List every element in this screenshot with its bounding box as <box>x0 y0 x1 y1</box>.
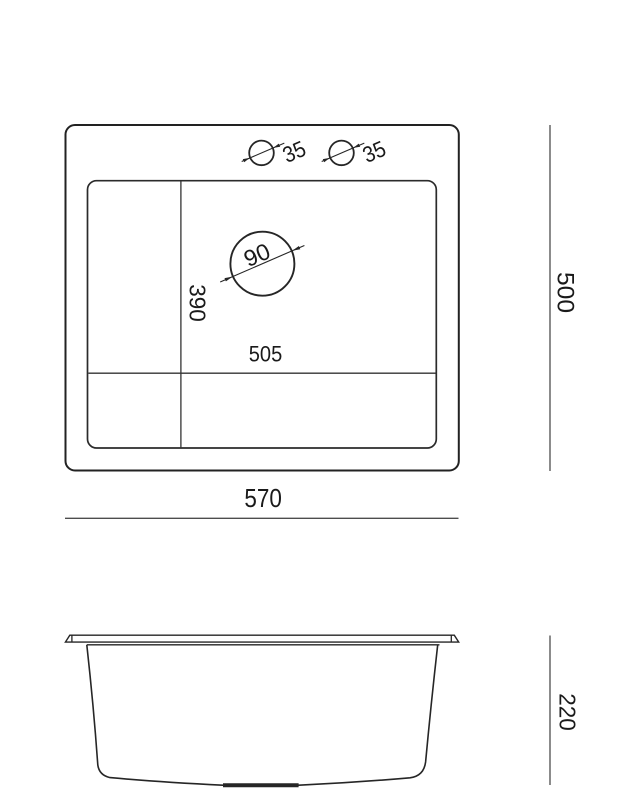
svg-text:570: 570 <box>244 485 282 513</box>
svg-text:500: 500 <box>552 272 579 313</box>
svg-text:505: 505 <box>249 342 283 367</box>
svg-text:390: 390 <box>185 284 211 322</box>
svg-text:220: 220 <box>555 693 581 731</box>
